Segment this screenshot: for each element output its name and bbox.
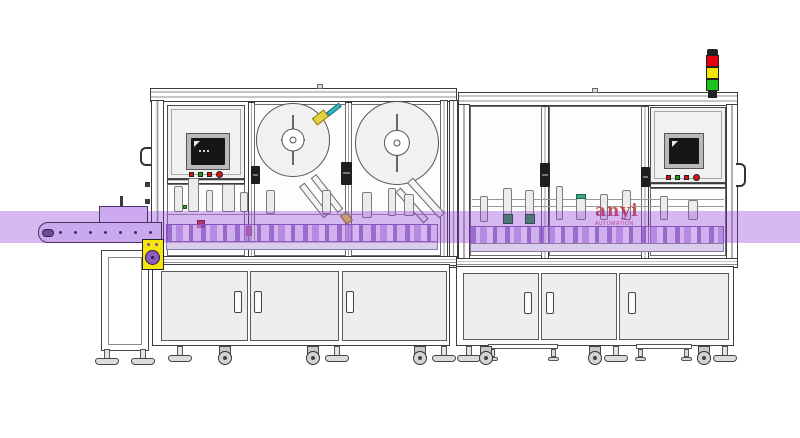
- support-skid: [488, 344, 558, 349]
- caster-hub: [418, 356, 422, 360]
- conveyor-stand-frame: [108, 257, 142, 345]
- reel-axle: [290, 137, 297, 144]
- hmi-screen-right: [669, 138, 699, 164]
- foot-base: [713, 355, 737, 362]
- machinery-component: [388, 188, 396, 216]
- leveling-foot: [168, 346, 192, 366]
- motor-bolt: [155, 243, 158, 246]
- caster-hub: [223, 356, 227, 360]
- signal-tower-base: [708, 91, 717, 98]
- reel-axle: [394, 140, 401, 147]
- machinery-component: [266, 190, 275, 214]
- machinery-component: [206, 190, 213, 212]
- brand-watermark-name: anyi: [595, 203, 639, 220]
- hmi-btn-red-round: [693, 174, 700, 181]
- door-handle: [524, 292, 532, 314]
- door-handle: [546, 292, 554, 314]
- hmi-btn-red: [666, 175, 671, 180]
- tower-light-yellow: [706, 67, 719, 79]
- hmi-btn-red: [207, 172, 212, 177]
- machinery-component: [480, 196, 488, 222]
- machinery-component: [174, 186, 183, 212]
- machine-line-technical-drawing: anyi AUTOMATION: [0, 0, 800, 438]
- motor-bolt: [147, 243, 150, 246]
- top-rail: [458, 92, 738, 106]
- foot-base: [432, 355, 456, 362]
- top-rail: [150, 88, 457, 102]
- hmi-panel-left: [186, 133, 230, 170]
- frame-post: [449, 100, 458, 268]
- teal-cap: [576, 194, 586, 199]
- foot-base: [95, 358, 119, 365]
- roller-dot: [149, 231, 152, 234]
- machinery-component: [222, 184, 235, 212]
- door-pull-handle: [140, 147, 151, 166]
- cabinet-door: [250, 271, 339, 341]
- caster-hub: [702, 356, 706, 360]
- machinery-component: [322, 190, 331, 214]
- door-hinge: [341, 162, 352, 185]
- indicator-dot: [183, 205, 187, 209]
- caster-hub: [593, 356, 597, 360]
- machinery-component: [660, 196, 668, 220]
- caster-wheel: [476, 346, 496, 366]
- foot-base: [325, 355, 349, 362]
- brand-watermark: anyi AUTOMATION: [595, 203, 639, 227]
- hmi-btn-red-round: [216, 171, 223, 178]
- skid-leg: [551, 349, 556, 357]
- leveling-foot: [604, 346, 628, 366]
- skid-leg: [638, 349, 643, 357]
- skid-foot: [548, 357, 559, 361]
- process-line-base: [166, 241, 438, 250]
- label-reel-2: [355, 101, 439, 185]
- screen-cursor-icon: [194, 141, 200, 147]
- caster-wheel: [585, 346, 605, 366]
- hmi-btn-red: [189, 172, 194, 177]
- machinery-component: [576, 198, 586, 220]
- screen-menu-dots-icon: [199, 150, 201, 152]
- base-cabinet-right: [456, 266, 734, 346]
- post-sensor: [145, 182, 150, 187]
- leveling-foot: [95, 349, 119, 369]
- frame-post: [458, 104, 470, 266]
- caster-wheel: [215, 346, 235, 366]
- roller-dot: [104, 231, 107, 234]
- machine-bed-line: [166, 214, 438, 215]
- lifting-eye: [317, 84, 323, 89]
- door-handle: [234, 291, 242, 313]
- leveling-foot: [713, 346, 737, 366]
- leveling-foot: [325, 346, 349, 366]
- skid-leg: [684, 349, 689, 357]
- lifting-eye: [592, 88, 598, 93]
- hmi-screen-left: [191, 138, 225, 165]
- frame-post: [440, 100, 448, 266]
- hmi-btn-red: [684, 175, 689, 180]
- door-hinge: [540, 163, 550, 187]
- roller-dot: [59, 231, 62, 234]
- post-sensor: [145, 199, 150, 204]
- conveyor-drive-motor: [142, 239, 164, 270]
- panel-rail: [650, 183, 726, 188]
- roller-dot: [89, 231, 92, 234]
- gripper-green-pad: [525, 214, 535, 224]
- door-handle: [628, 292, 636, 314]
- door-hinge: [251, 166, 260, 184]
- foot-base: [168, 355, 192, 362]
- machinery-component: [556, 186, 563, 220]
- cabinet-door: [342, 271, 447, 341]
- gripper-green-pad: [503, 214, 513, 224]
- process-line-components: [166, 224, 438, 242]
- door-pull-handle: [736, 163, 746, 187]
- machinery-component: [188, 178, 199, 212]
- hmi-button-row-left: [189, 171, 223, 178]
- roller-dot: [134, 231, 137, 234]
- door-handle: [346, 291, 354, 313]
- caster-wheel: [694, 346, 714, 366]
- door-handle: [254, 291, 262, 313]
- caster-wheel: [303, 346, 323, 366]
- leveling-foot: [432, 346, 456, 366]
- process-line-base: [470, 243, 724, 252]
- machinery-component: [688, 200, 698, 220]
- roller-dot: [119, 231, 122, 234]
- machinery-component: [404, 194, 414, 216]
- machinery-component: [362, 192, 372, 218]
- drive-gear: [145, 250, 160, 265]
- hmi-panel-right: [664, 133, 704, 169]
- caster-hub: [311, 356, 315, 360]
- belt-pulley: [42, 229, 54, 237]
- skid-foot: [635, 357, 646, 361]
- foot-base: [604, 355, 628, 362]
- process-line-components: [470, 226, 724, 244]
- hmi-btn-green: [675, 175, 680, 180]
- tower-light-red: [706, 55, 719, 67]
- screen-cursor-icon: [672, 141, 678, 147]
- foot-base: [131, 358, 155, 365]
- hmi-btn-green: [198, 172, 203, 177]
- caster-hub: [484, 356, 488, 360]
- roller-dot: [74, 231, 77, 234]
- hmi-button-row-right: [666, 174, 700, 181]
- base-cabinet-left: [152, 264, 450, 346]
- machinery-component: [240, 192, 248, 212]
- door-hinge: [641, 167, 650, 187]
- caster-wheel: [410, 346, 430, 366]
- conveyor-sensor-pin: [120, 196, 123, 206]
- tower-light-green: [706, 79, 719, 91]
- skid-foot: [681, 357, 692, 361]
- signal-tower: [706, 55, 719, 91]
- brand-watermark-subtitle: AUTOMATION: [595, 222, 639, 227]
- leveling-foot: [131, 349, 155, 369]
